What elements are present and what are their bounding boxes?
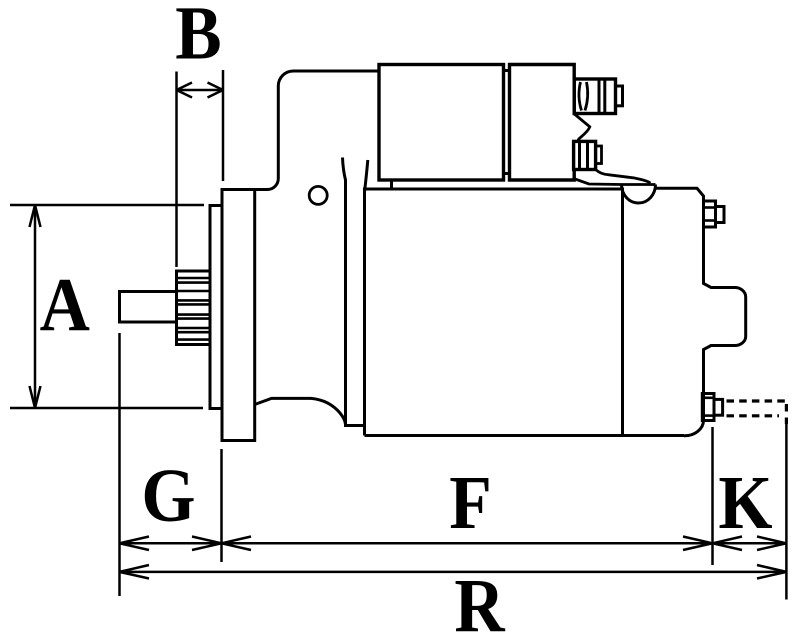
svg-text:R: R xyxy=(454,563,505,638)
svg-text:G: G xyxy=(141,453,195,538)
svg-text:F: F xyxy=(449,460,492,545)
svg-text:A: A xyxy=(40,262,90,347)
svg-text:K: K xyxy=(718,460,772,545)
svg-text:B: B xyxy=(175,0,221,75)
